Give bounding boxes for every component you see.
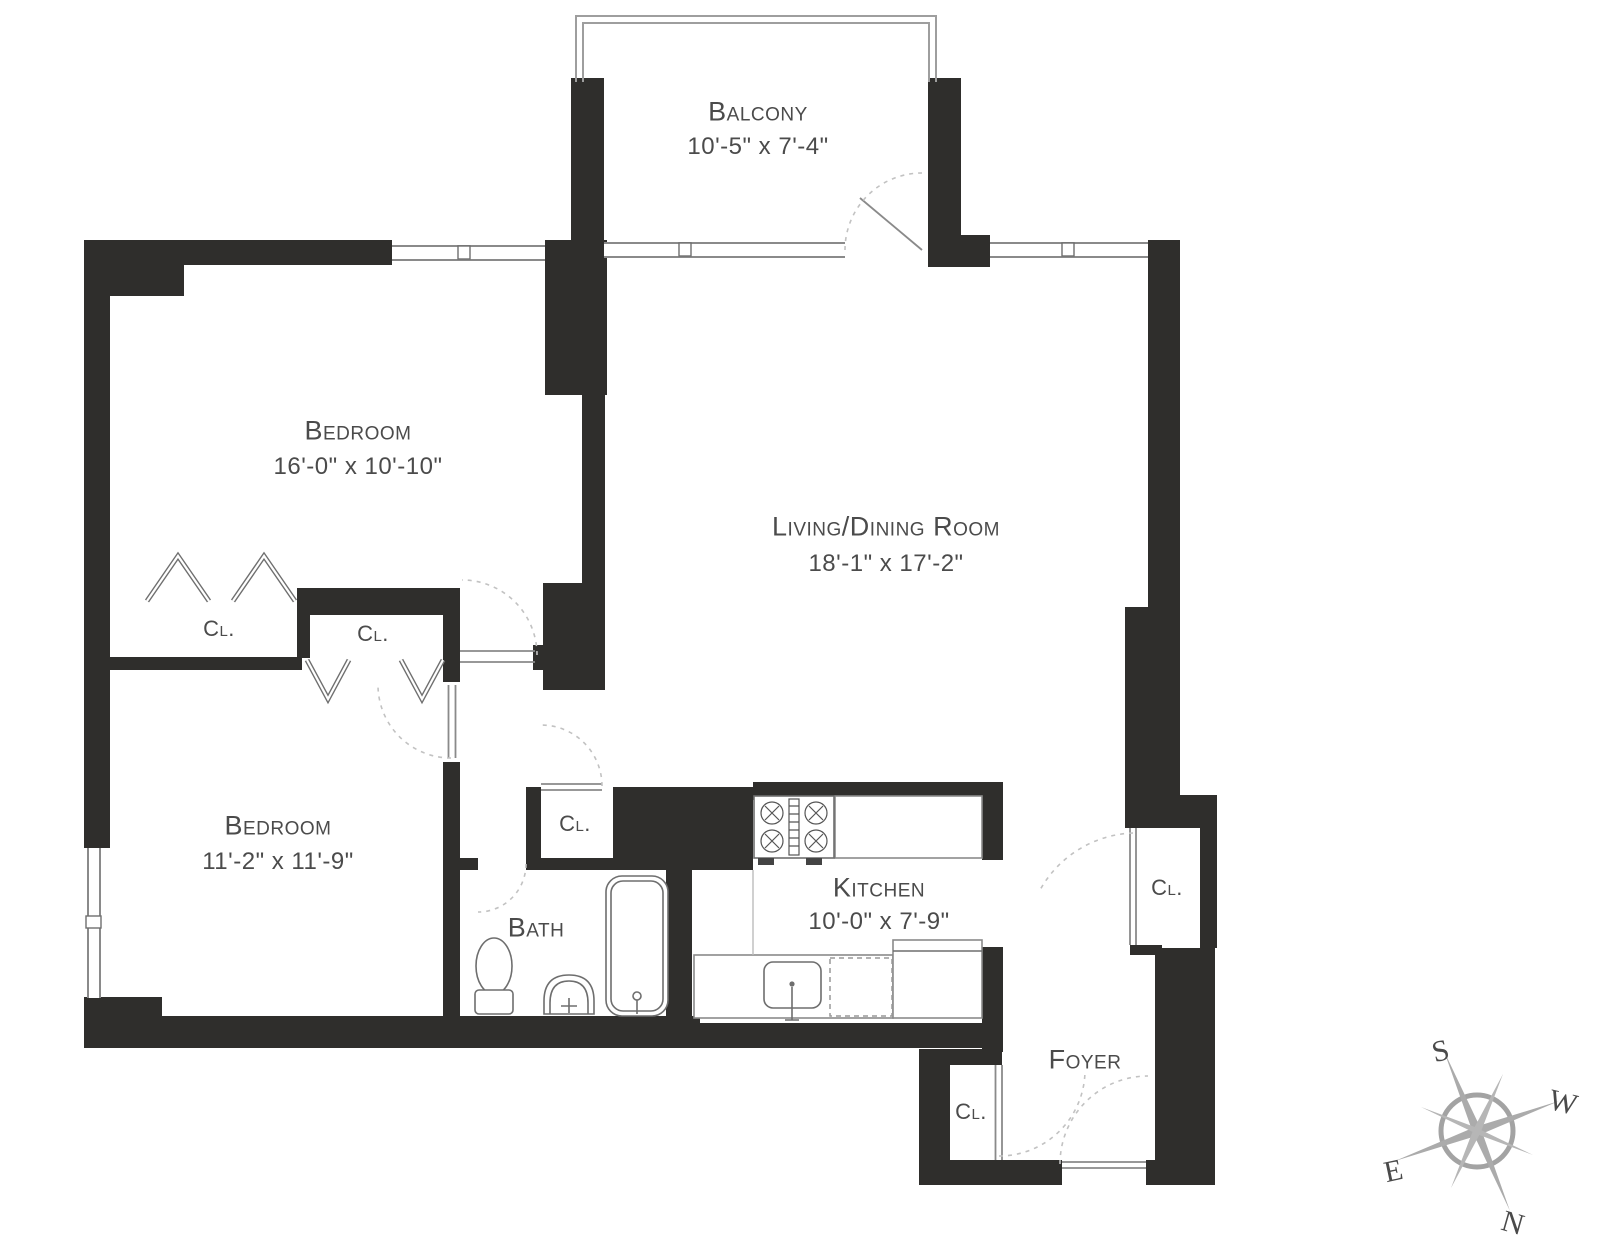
door-swing-arc (478, 864, 526, 912)
door-swing-arc (1060, 1076, 1148, 1164)
window-mullion-icon (458, 246, 470, 259)
door-swing-arc (541, 725, 602, 786)
room-label-living: Living/Dining Room (772, 514, 1000, 541)
closet-label: Cl. (559, 813, 591, 835)
door-swing-arc (462, 580, 537, 655)
entry-door-threshold (1062, 1162, 1146, 1168)
closet-label: Cl. (203, 618, 235, 640)
balcony-railing (583, 23, 929, 82)
room-label-foyer: Foyer (1049, 1047, 1122, 1074)
bedroom2-door (449, 685, 456, 758)
room-label-kitchen: Kitchen (833, 875, 925, 902)
window-mullion-icon (679, 243, 691, 256)
window-mullion-icon (86, 916, 101, 928)
floor-plan: S W E N Balcony 10'-5" x 7'-4" Bedroom 1… (0, 0, 1600, 1258)
compass-north-label: N (1498, 1204, 1528, 1242)
bath-sink-icon (544, 975, 594, 1014)
compass-south-label: S (1428, 1033, 1452, 1069)
closet-label: Cl. (955, 1101, 987, 1123)
room-label-bath: Bath (508, 915, 565, 942)
room-label-bedroom2: Bedroom (224, 813, 331, 840)
room-label-bedroom1: Bedroom (304, 418, 411, 445)
room-dims-living: 18'-1" x 17'-2" (808, 552, 963, 576)
living-closet-door (1130, 828, 1136, 945)
counter (694, 796, 982, 1018)
door-swing-arc (999, 1070, 1085, 1156)
door-swing-arc (1040, 833, 1133, 890)
room-label-balcony: Balcony (708, 99, 808, 126)
room-dims-bedroom1: 16'-0" x 10'-10" (274, 455, 443, 479)
door-swing-arc (378, 685, 451, 758)
compass-rose-icon: S W E N (1381, 1033, 1581, 1242)
stove-icon (754, 796, 834, 865)
bifold-door-icon (307, 660, 443, 699)
plan-graphics: S W E N (0, 0, 1600, 1258)
bathtub-icon (606, 876, 668, 1016)
balcony-railing (576, 16, 936, 82)
closet-label: Cl. (1151, 877, 1183, 899)
closet-label: Cl. (357, 623, 389, 645)
room-dims-kitchen: 10'-0" x 7'-9" (808, 910, 949, 934)
hall-closet-door (541, 784, 602, 790)
balcony-door (860, 198, 922, 250)
toilet-icon (475, 938, 513, 1014)
bifold-door-icon (147, 556, 295, 601)
room-dims-balcony: 10'-5" x 7'-4" (687, 135, 828, 159)
window-mullion-icon (1062, 243, 1074, 256)
foyer-closet-door (996, 1065, 1003, 1160)
door-swing-arc (845, 173, 922, 250)
room-dims-bedroom2: 11'-2" x 11'-9" (202, 850, 354, 874)
compass-west-label: W (1545, 1083, 1581, 1122)
bedroom1-door (460, 651, 535, 662)
